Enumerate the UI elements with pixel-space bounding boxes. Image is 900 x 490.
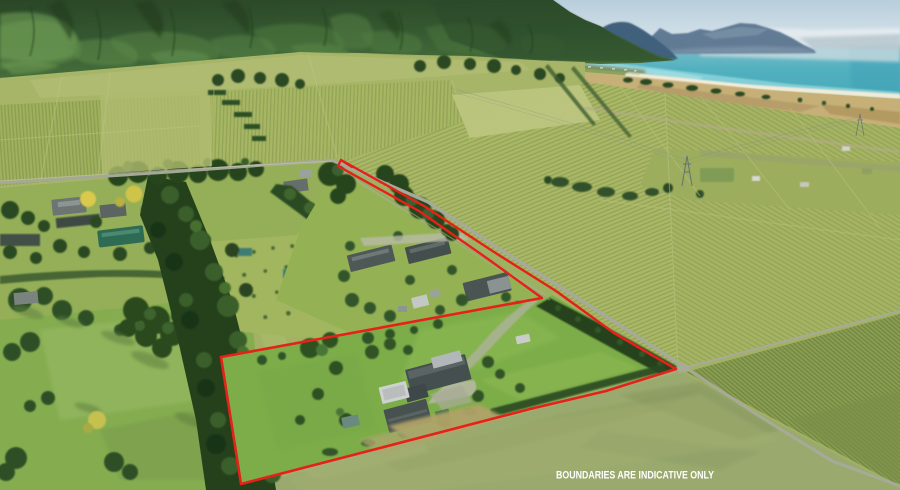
svg-text:BOUNDARIES ARE INDICATIVE ONLY: BOUNDARIES ARE INDICATIVE ONLY	[556, 470, 715, 482]
